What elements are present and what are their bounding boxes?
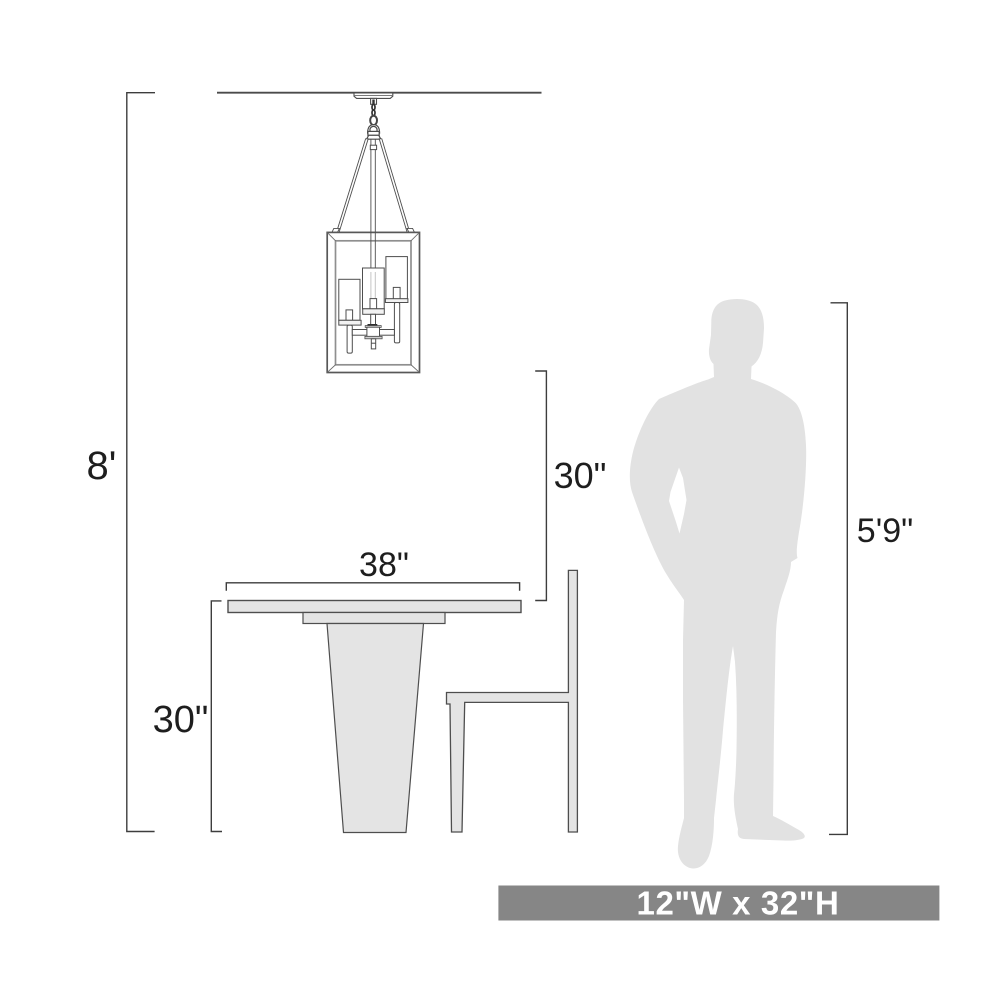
svg-text:12"W x 32"H: 12"W x 32"H: [637, 885, 840, 922]
svg-text:5'9": 5'9": [857, 512, 913, 550]
svg-text:30": 30": [554, 455, 607, 496]
svg-text:8': 8': [87, 444, 117, 488]
svg-text:38": 38": [359, 546, 409, 584]
svg-text:30": 30": [153, 699, 209, 741]
